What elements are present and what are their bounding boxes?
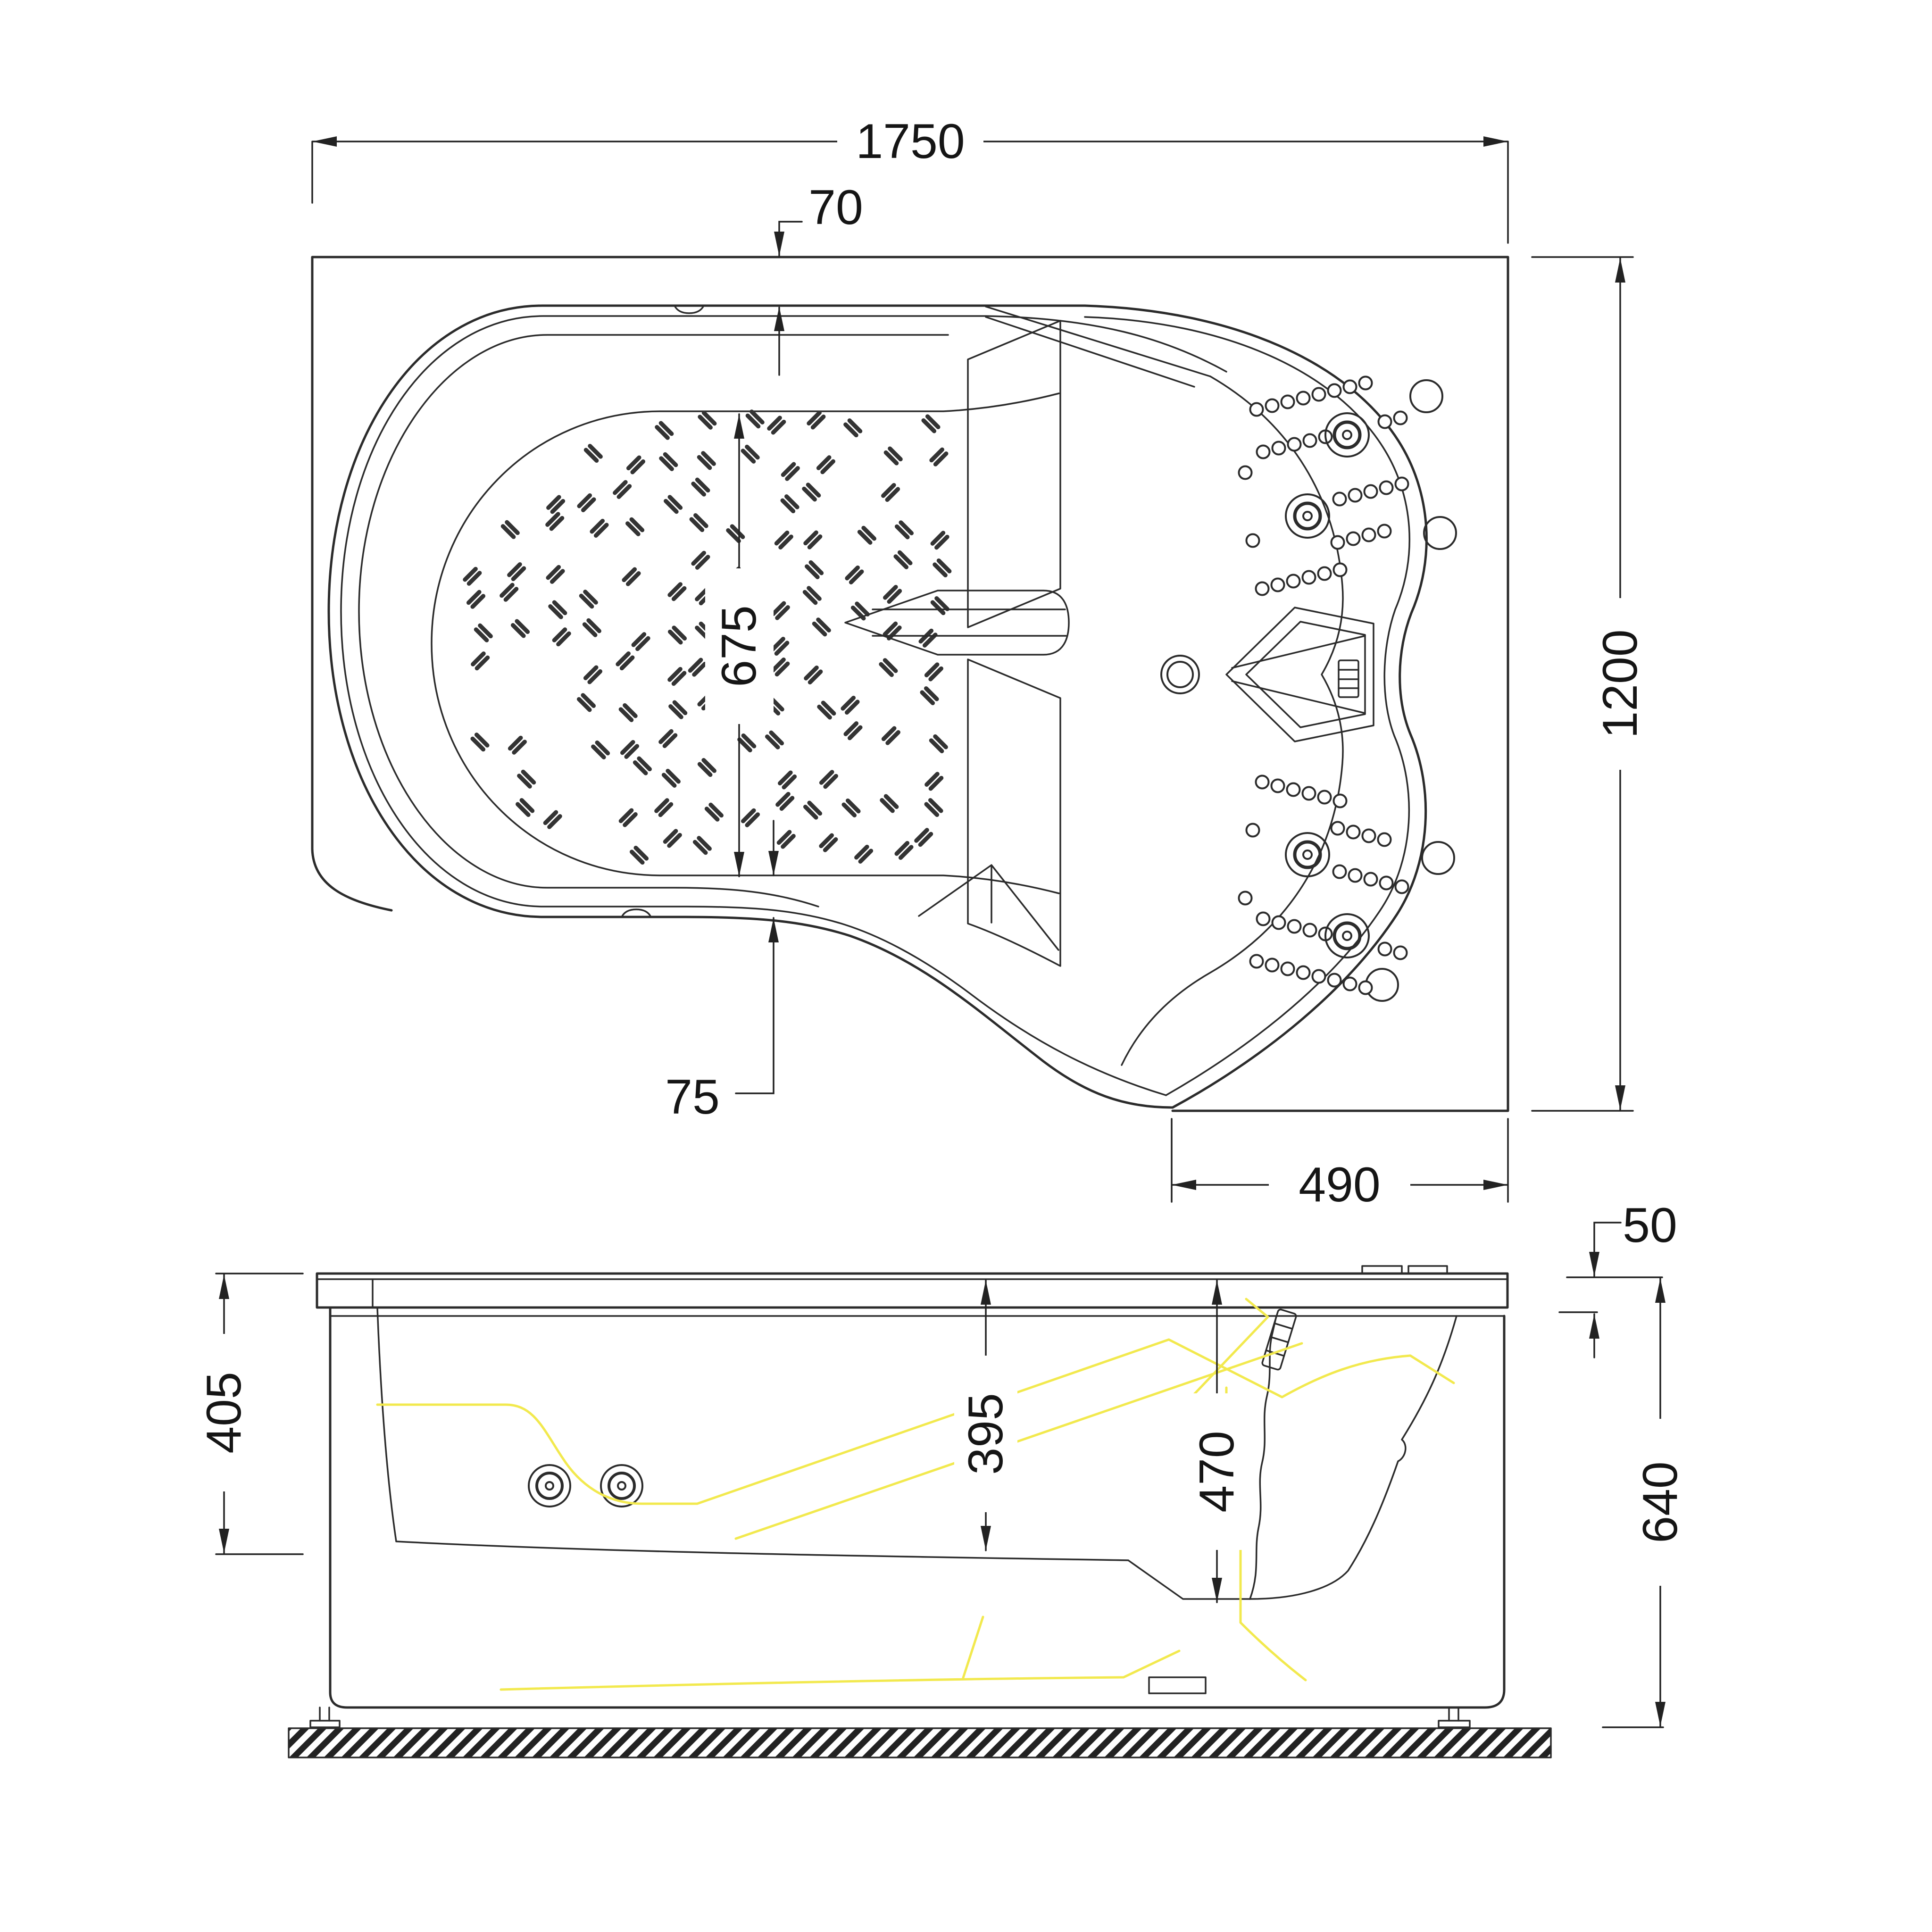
drain [1161,656,1199,693]
dim-overall-height-label: 640 [1633,1461,1688,1543]
armrest [845,591,1069,655]
dim-rim-offset-bottom-label: 75 [665,1070,720,1124]
rim-fold-top [986,307,1210,387]
jet-cluster-lower [1239,776,1408,994]
drain-trap [1149,1677,1206,1693]
dim-overall-width-label: 1200 [1593,629,1648,738]
deck-holes [1366,380,1456,1001]
foot-right [1439,1707,1470,1727]
deck-hole [1422,842,1454,874]
dimension-arrows [219,136,1666,1726]
dim-basin-depth-right-label: 470 [1190,1431,1244,1513]
dimension-label-backgrounds [192,111,1692,1586]
dim-rim-thickness-label: 50 [1623,1198,1677,1253]
dim-basin-width-label: 675 [712,605,766,687]
jet-cluster-upper [1239,377,1408,595]
ground-hatch [289,1728,1551,1757]
rim-fold-bottom [919,865,1058,950]
side-jet [529,1465,570,1507]
tub-rim-inner [341,316,1226,1095]
side-view [289,1266,1551,1757]
headrest-pillow [1226,608,1374,741]
deck-hole [1424,517,1456,549]
basin-inner-profile [377,1307,1250,1599]
tub-outer-rim [329,306,1426,1108]
dim-seat-section-label: 490 [1299,1158,1381,1212]
backrest-panel-upper [968,321,1060,627]
seat-step-profile [1250,1316,1457,1599]
bowl-edge [359,335,948,907]
dimension-labels: 1750 70 675 75 490 1200 405 395 470 50 6… [197,114,1688,1543]
deck-band [317,1266,1507,1307]
apron-outline [330,1307,1504,1707]
dim-seat-depth-label: 395 [958,1393,1013,1475]
deck-hole [1410,380,1442,412]
dim-overall-length-label: 1750 [856,114,965,169]
foot-left [310,1707,340,1727]
seat-valley-curve [1122,376,1343,1065]
dimension-lines [216,142,1663,1727]
dim-basin-depth-left-label: 405 [197,1372,251,1454]
control-keypad [1339,660,1358,697]
technical-drawing: 1750 70 675 75 490 1200 405 395 470 50 6… [0,0,1932,1932]
backrest-panel-lower [968,659,1060,966]
dim-rim-offset-top-label: 70 [808,180,863,235]
dim-rim-offset-top-lines [779,222,802,375]
drawing-canvas: 1750 70 675 75 490 1200 405 395 470 50 6… [0,0,1932,1932]
top-view [312,257,1508,1111]
